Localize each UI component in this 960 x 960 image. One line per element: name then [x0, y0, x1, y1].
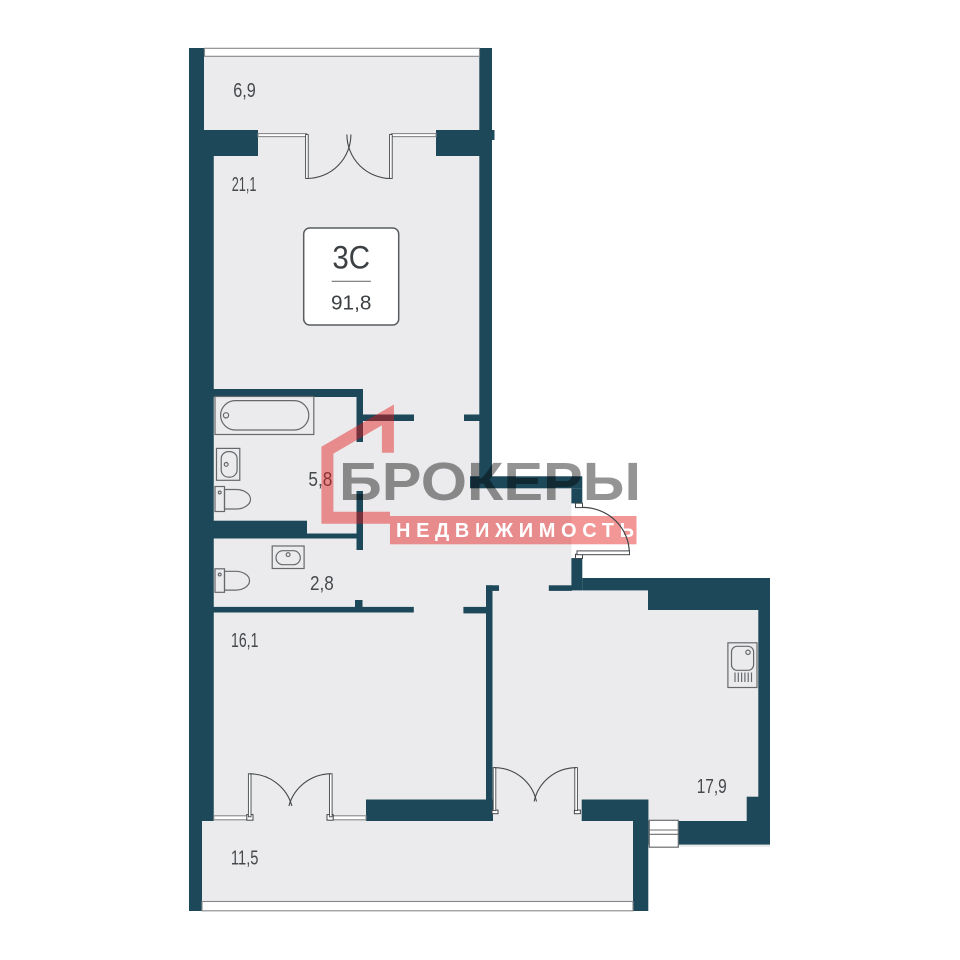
svg-text:БРОКЕРЫ: БРОКЕРЫ [339, 452, 641, 512]
svg-text:6,9: 6,9 [233, 80, 256, 102]
svg-text:11,5: 11,5 [231, 848, 259, 870]
svg-text:2,8: 2,8 [310, 573, 334, 595]
svg-text:21,1: 21,1 [232, 174, 257, 196]
svg-text:91,8: 91,8 [331, 292, 371, 314]
svg-text:16,1: 16,1 [231, 630, 258, 652]
svg-text:3С: 3С [332, 239, 370, 275]
svg-text:17,9: 17,9 [697, 776, 727, 798]
